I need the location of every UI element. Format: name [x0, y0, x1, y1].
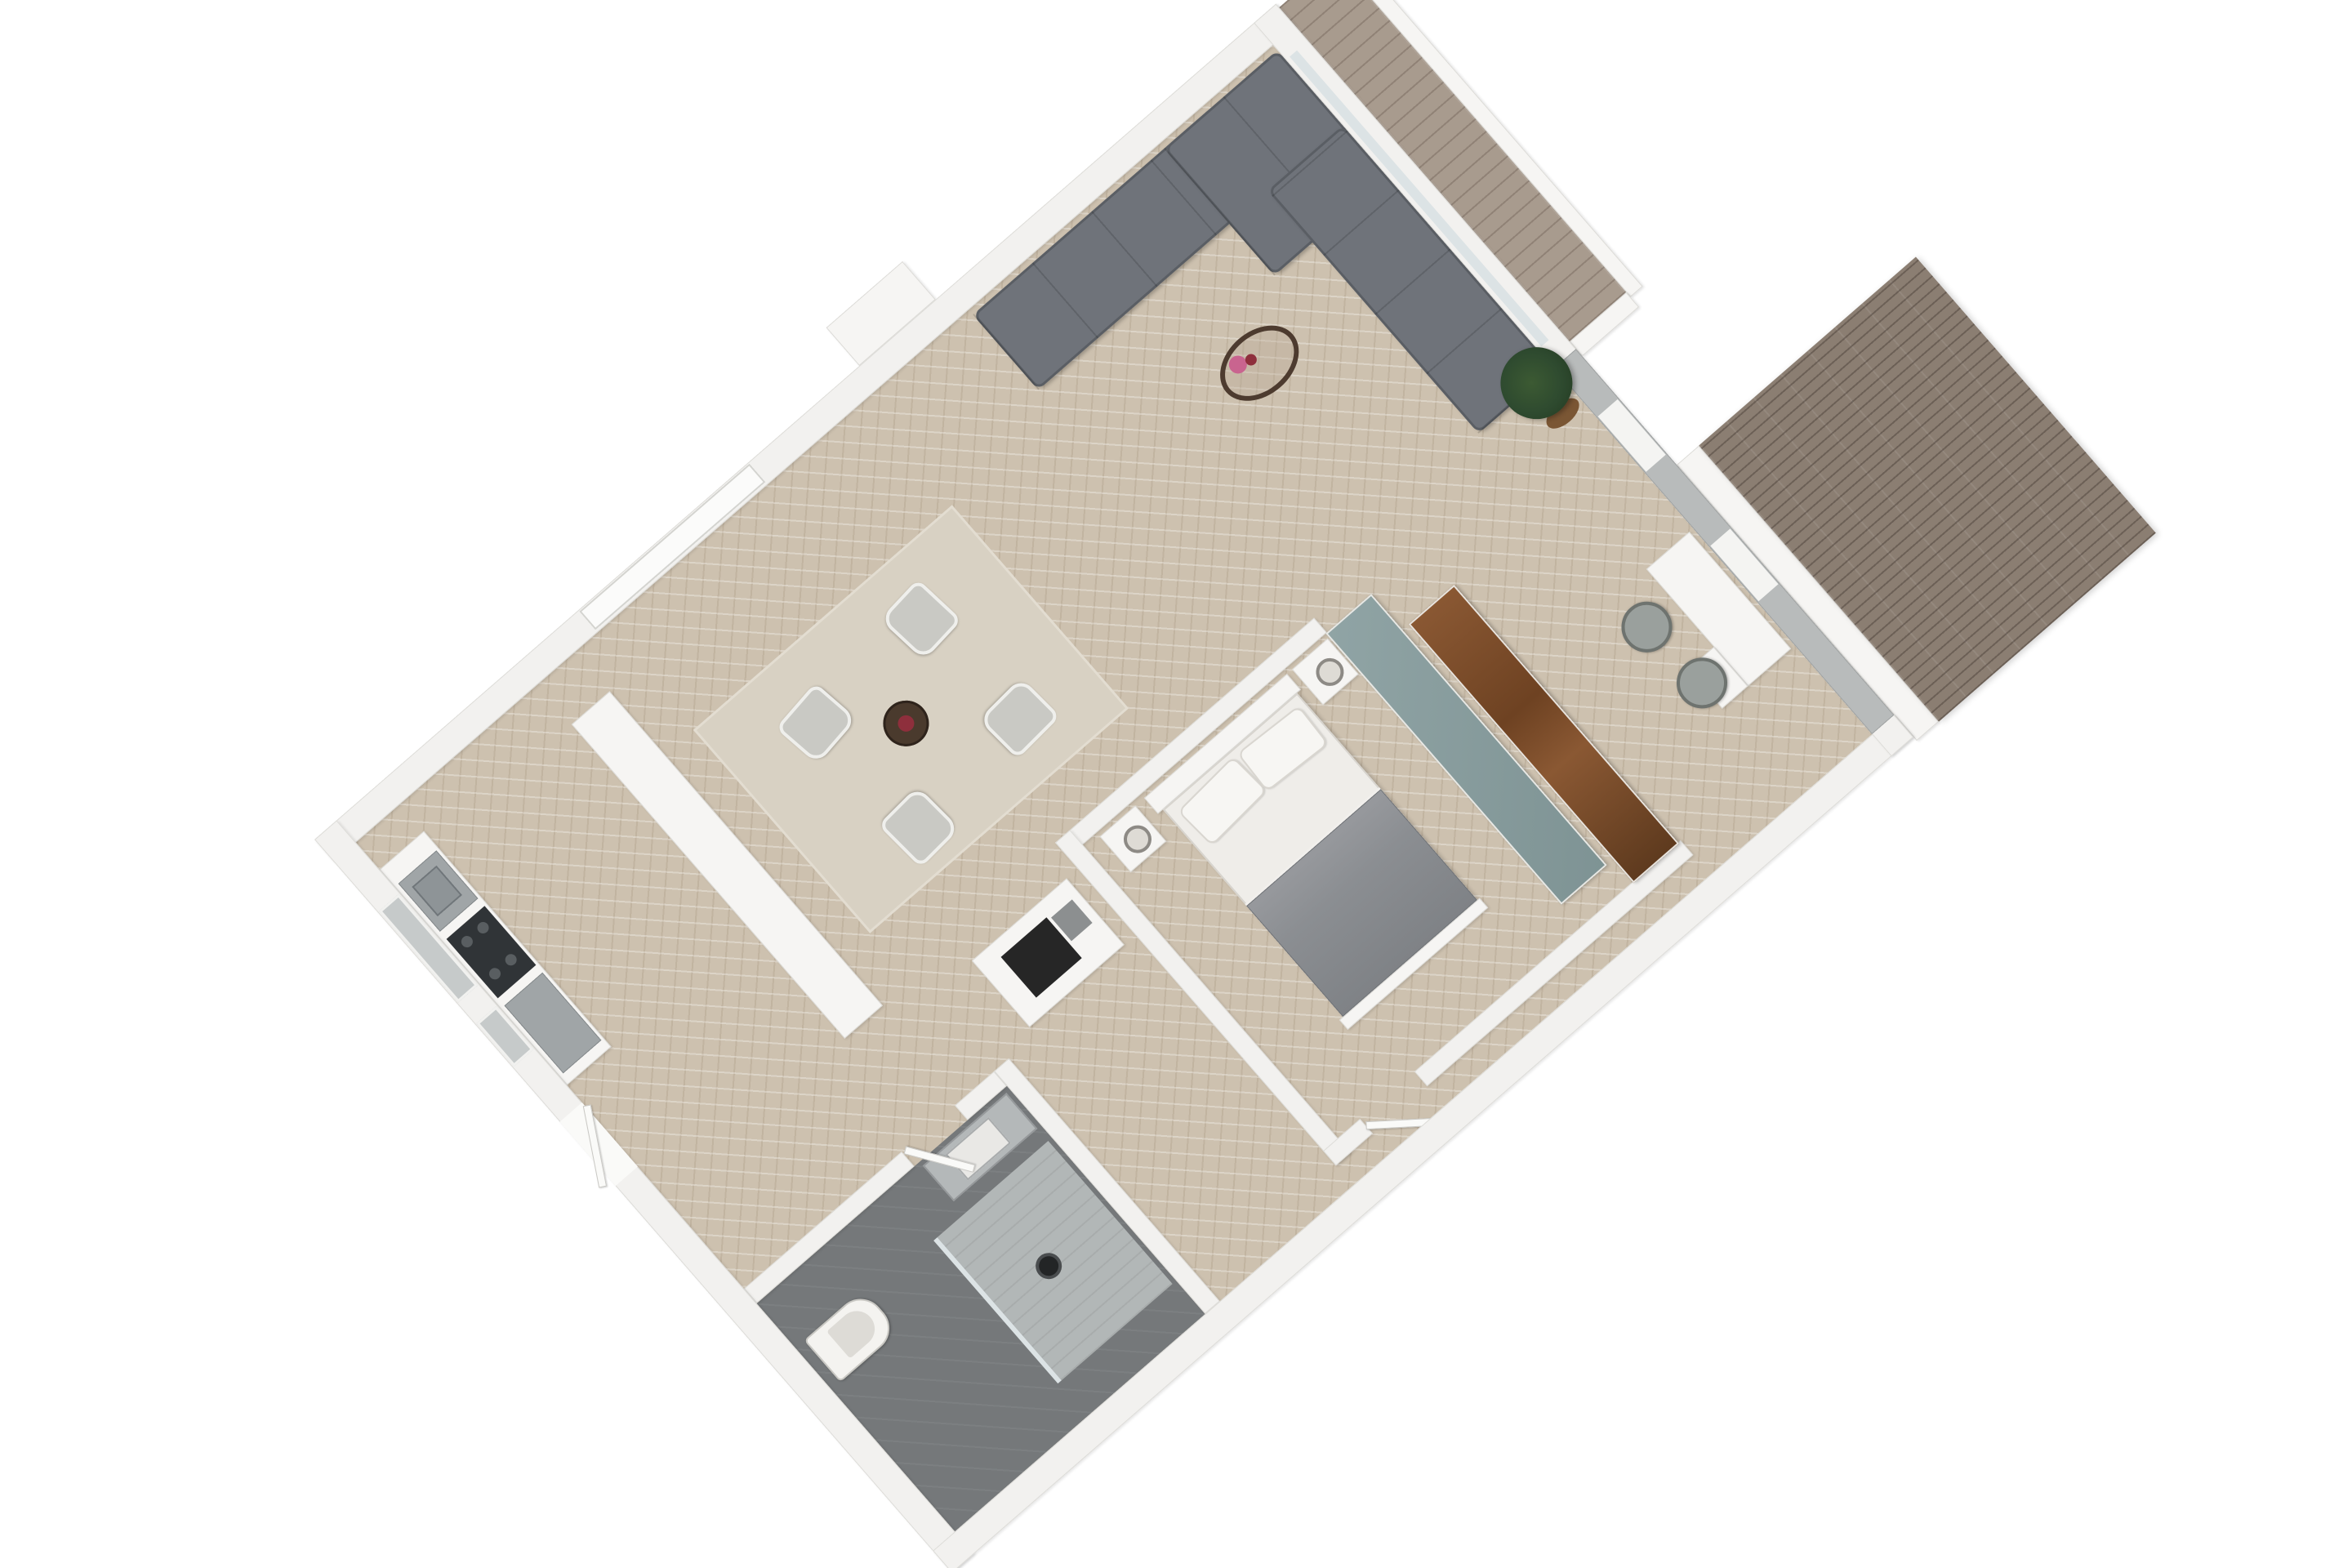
- floorplan-scene: [0, 0, 2352, 1568]
- apartment-plan: [314, 4, 1913, 1568]
